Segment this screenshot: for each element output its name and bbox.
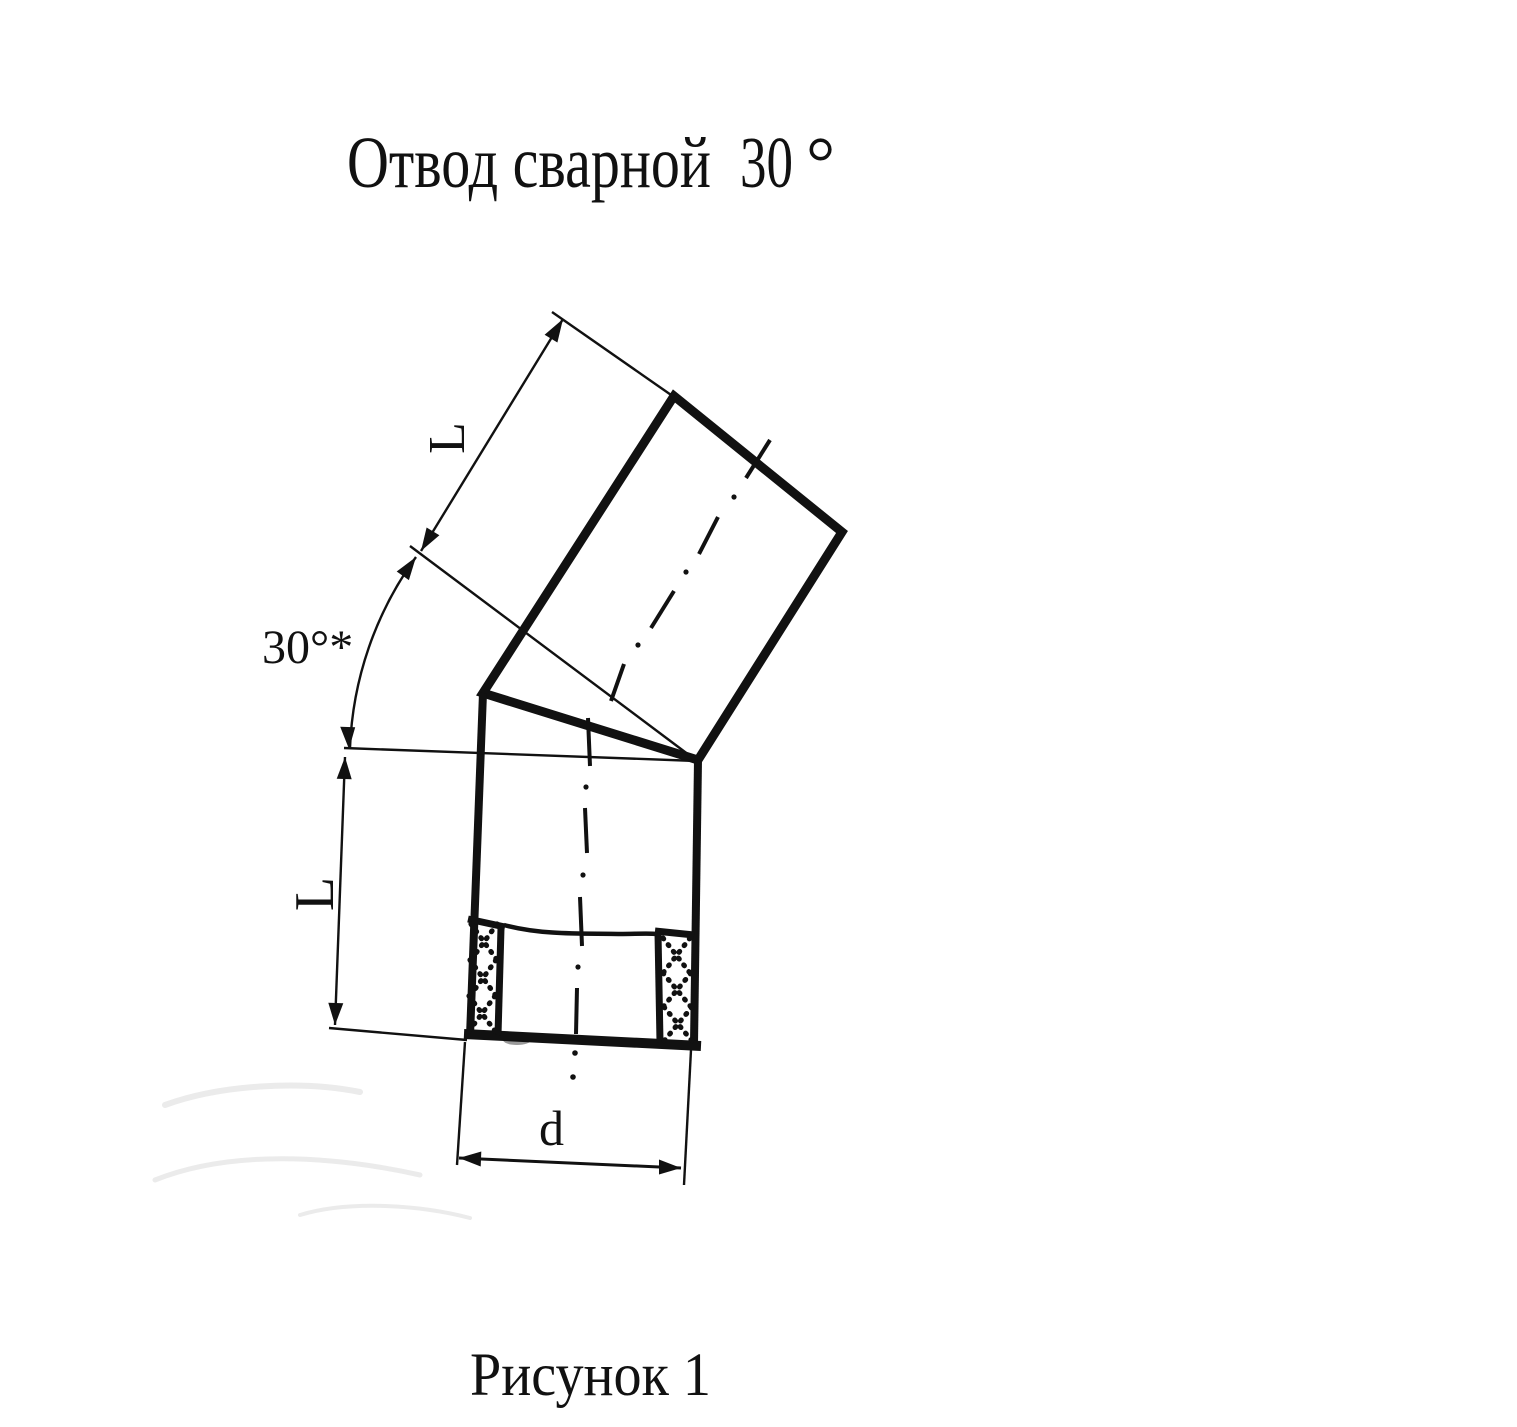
svg-text:L: L	[419, 422, 476, 454]
svg-text:Рисунок 1: Рисунок 1	[470, 1342, 711, 1409]
svg-text:30: 30	[740, 122, 793, 203]
svg-text:30°*: 30°*	[262, 621, 353, 674]
svg-text:d: d	[539, 1100, 564, 1156]
svg-text:L: L	[284, 877, 346, 911]
svg-text:Отвод сварной: Отвод сварной	[347, 122, 711, 203]
svg-text:°: °	[806, 122, 835, 203]
